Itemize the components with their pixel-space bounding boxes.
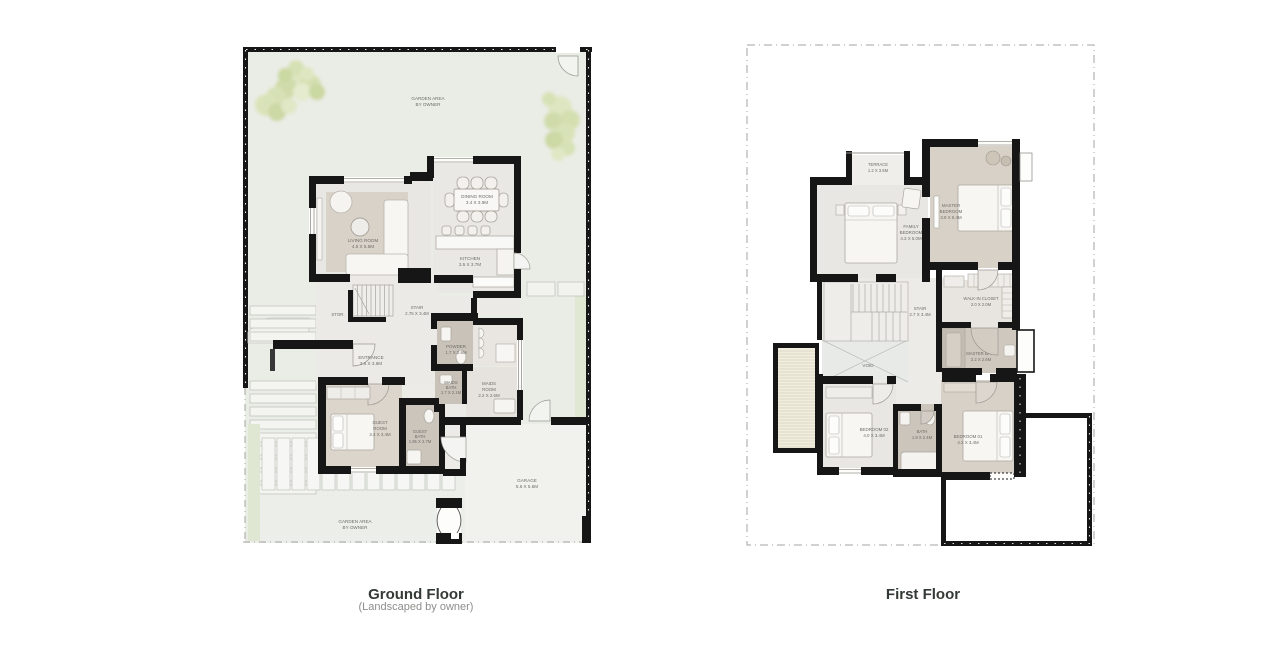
svg-text:POWDER: POWDER bbox=[446, 344, 466, 349]
svg-text:MAIDS: MAIDS bbox=[482, 381, 496, 386]
svg-text:2.7 X 3.4M: 2.7 X 3.4M bbox=[909, 312, 931, 317]
svg-text:BEDROOM: BEDROOM bbox=[900, 230, 923, 235]
svg-text:TERRACE: TERRACE bbox=[868, 162, 888, 167]
svg-text:BEDROOM 02: BEDROOM 02 bbox=[860, 427, 889, 432]
svg-text:GARAGE: GARAGE bbox=[517, 478, 537, 483]
svg-text:3.5 X 3.7M: 3.5 X 3.7M bbox=[459, 262, 481, 267]
svg-text:BY OWNER: BY OWNER bbox=[343, 525, 369, 530]
svg-text:3.6 X 3.6M: 3.6 X 3.6M bbox=[360, 361, 382, 366]
svg-text:1.95 X 2.7M: 1.95 X 2.7M bbox=[409, 439, 432, 444]
svg-text:5.6 X 5.6M: 5.6 X 5.6M bbox=[516, 484, 538, 489]
svg-text:GARDEN AREA: GARDEN AREA bbox=[338, 519, 372, 524]
svg-text:1.9 X 2.4M: 1.9 X 2.4M bbox=[912, 435, 933, 440]
svg-text:ENTRANCE: ENTRANCE bbox=[358, 355, 383, 360]
svg-text:GARDEN AREA: GARDEN AREA bbox=[411, 96, 445, 101]
svg-text:4.0 X 3.4M: 4.0 X 3.4M bbox=[863, 433, 885, 438]
svg-text:1.2 X 3.5M: 1.2 X 3.5M bbox=[868, 168, 889, 173]
svg-text:GUEST: GUEST bbox=[372, 420, 387, 425]
svg-text:VOID: VOID bbox=[862, 363, 874, 368]
svg-text:BEDROOM 01: BEDROOM 01 bbox=[954, 434, 983, 439]
svg-text:ROOM: ROOM bbox=[482, 387, 496, 392]
svg-text:2.0 X 2.0M: 2.0 X 2.0M bbox=[971, 302, 992, 307]
svg-text:BY OWNER: BY OWNER bbox=[416, 102, 442, 107]
svg-text:DINING ROOM: DINING ROOM bbox=[461, 194, 493, 199]
svg-text:4.3 X 5.0M: 4.3 X 5.0M bbox=[900, 236, 922, 241]
svg-text:STAIR: STAIR bbox=[914, 306, 927, 311]
svg-text:4.2 X 3.4M: 4.2 X 3.4M bbox=[957, 440, 979, 445]
svg-text:KITCHEN: KITCHEN bbox=[460, 256, 480, 261]
svg-text:LIVING ROOM: LIVING ROOM bbox=[348, 238, 379, 243]
svg-text:WALK-IN CLOSET: WALK-IN CLOSET bbox=[963, 296, 999, 301]
svg-text:3.4 X 3.9M: 3.4 X 3.9M bbox=[466, 200, 488, 205]
svg-text:2.75 X 3.4M: 2.75 X 3.4M bbox=[405, 311, 429, 316]
svg-text:1.7 X 2.1M: 1.7 X 2.1M bbox=[441, 390, 462, 395]
svg-text:FAMILY: FAMILY bbox=[903, 224, 918, 229]
svg-text:BATH: BATH bbox=[917, 429, 928, 434]
svg-text:STOR.: STOR. bbox=[331, 312, 344, 317]
svg-text:1.7 X 2.6M: 1.7 X 2.6M bbox=[445, 350, 467, 355]
svg-text:STAIR: STAIR bbox=[411, 305, 424, 310]
svg-text:2.2 X 2.5M: 2.2 X 2.5M bbox=[478, 393, 500, 398]
svg-text:BEDROOM: BEDROOM bbox=[940, 209, 963, 214]
svg-text:4.5 X 5.5M: 4.5 X 5.5M bbox=[352, 244, 374, 249]
svg-text:2.2 X 2.6M: 2.2 X 2.6M bbox=[971, 357, 992, 362]
svg-text:MASTER: MASTER bbox=[942, 203, 960, 208]
svg-text:3.4 X 3.4M: 3.4 X 3.4M bbox=[369, 432, 391, 437]
svg-text:3.9 X 5.4M: 3.9 X 5.4M bbox=[940, 215, 962, 220]
svg-text:ROOM: ROOM bbox=[373, 426, 387, 431]
